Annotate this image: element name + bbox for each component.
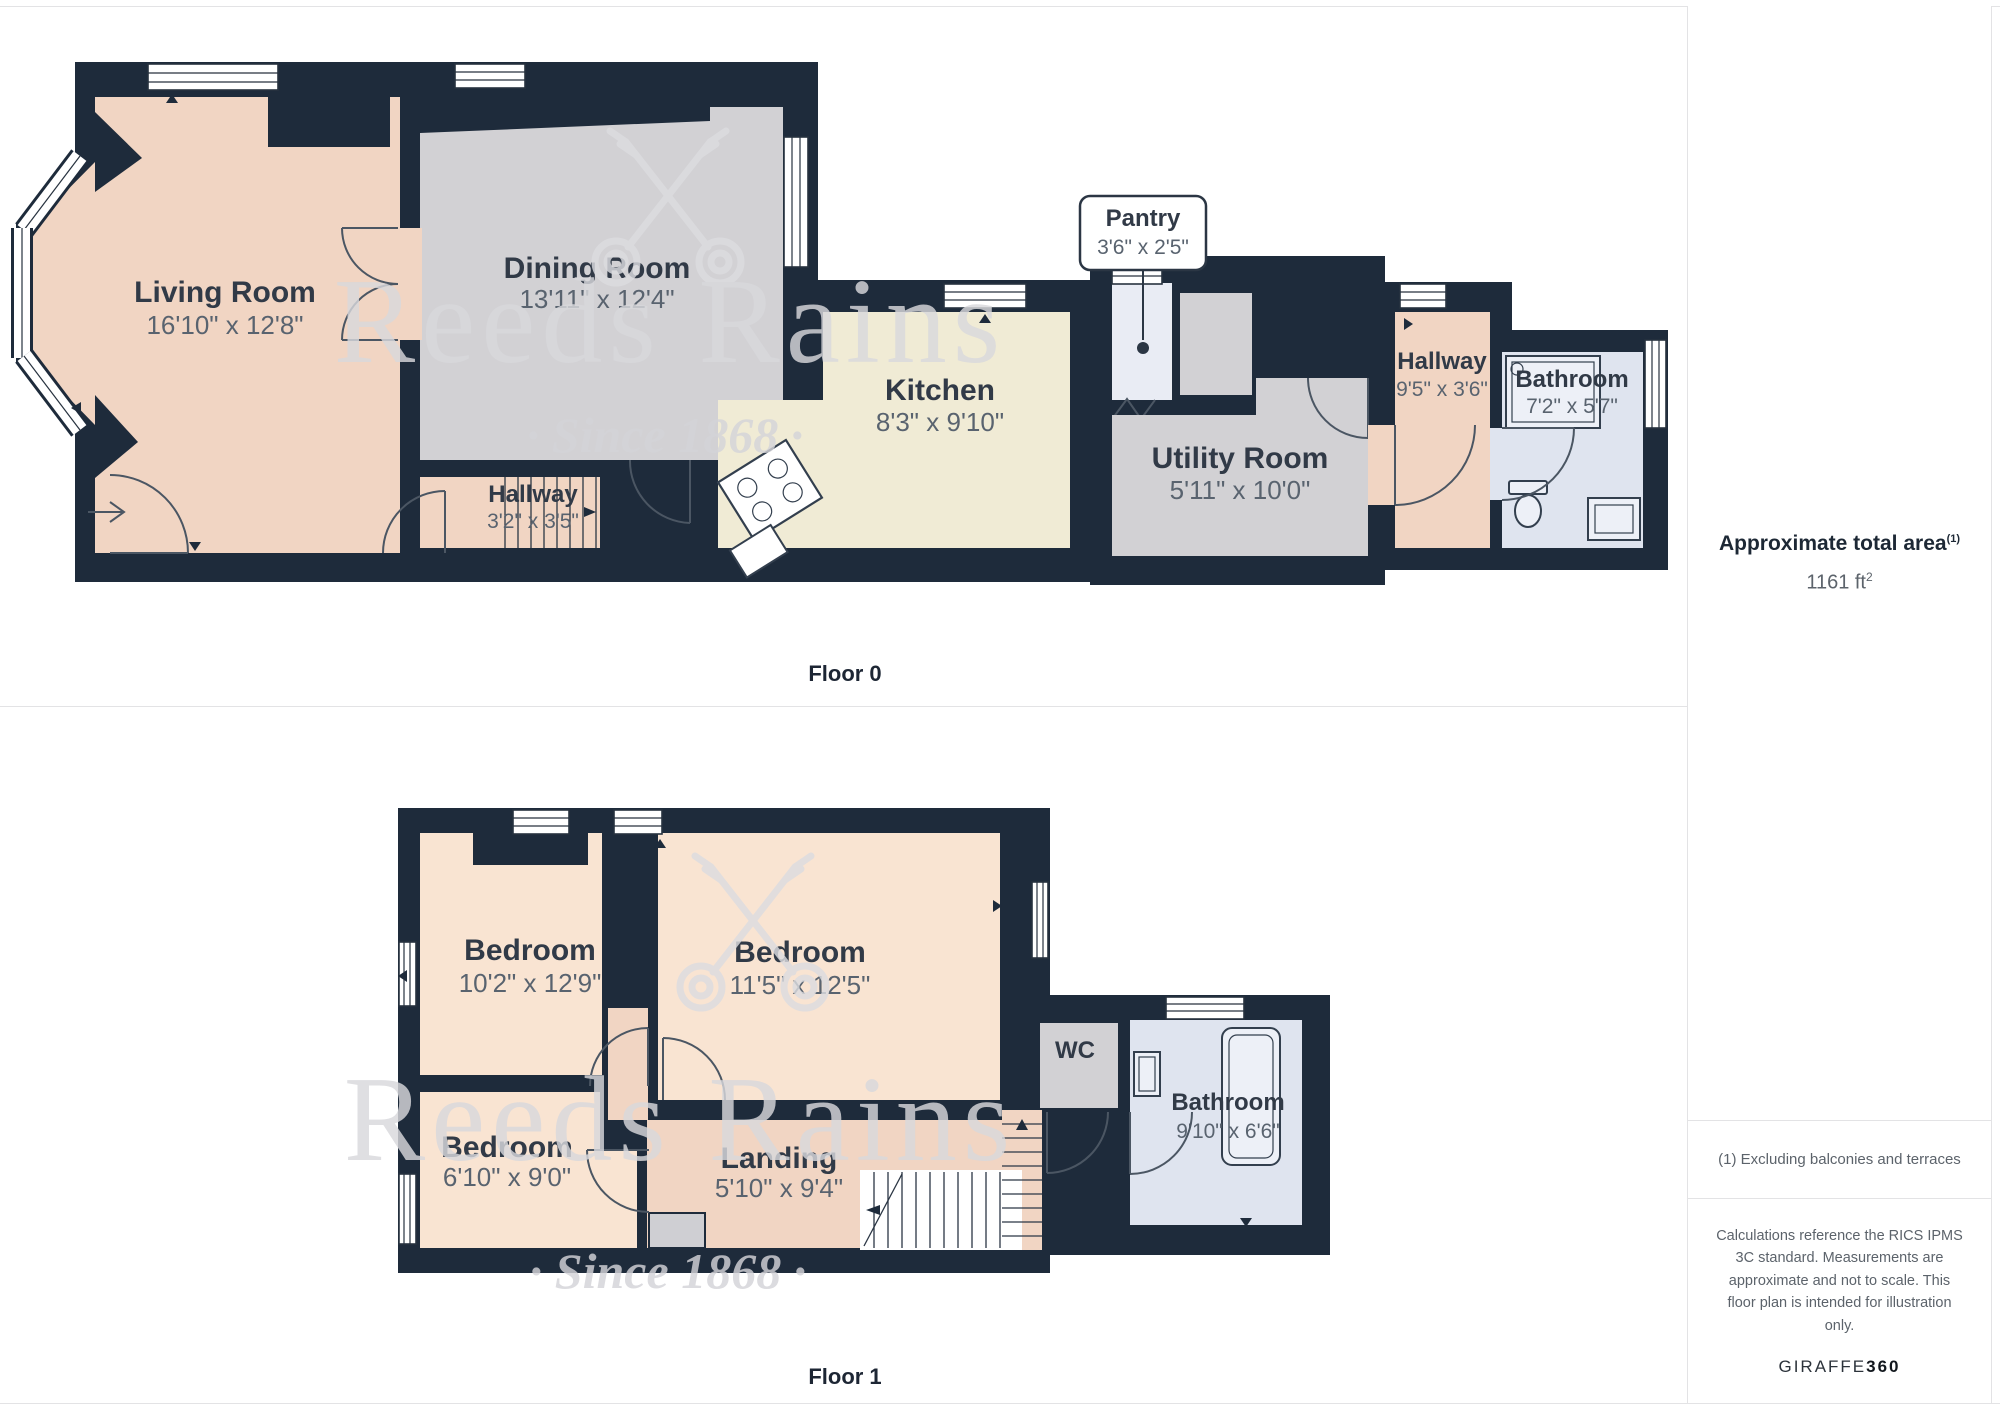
chimney-breast	[268, 97, 390, 147]
room-name: Bathroom	[1515, 366, 1628, 393]
footnote-section: (1) Excluding balconies and terraces	[1688, 1120, 1991, 1198]
sink-icon	[1588, 498, 1640, 540]
room-name: Hallway	[1397, 348, 1487, 375]
watermark-tagline: · Since 1868 ·	[530, 1243, 806, 1299]
room-name: Bedroom	[464, 934, 596, 967]
floor1-plan: Bedroom 10'2" x 12'9" Bedroom 11'5" x 12…	[344, 808, 1330, 1389]
room-hallway-floor0: Hallway 3'2" x 3'5"	[420, 477, 600, 548]
watermark-brand: Reeds Rains	[334, 254, 1007, 389]
room-dims: 9'5" x 3'6"	[1396, 378, 1488, 401]
footnote-marker: (1)	[1947, 533, 1960, 545]
room-dims: 8'3" x 9'10"	[876, 407, 1004, 437]
room-dims: 5'11" x 10'0"	[1170, 475, 1311, 505]
footnote-text: (1) Excluding balconies and terraces	[1718, 1151, 1961, 1168]
giraffe360-logo: GIRAFFE360	[1778, 1357, 1900, 1377]
floor0-plan: Living Room 16'10" x 12'8" Dining Room 1…	[16, 62, 1668, 686]
floorplan-svg: Living Room 16'10" x 12'8" Dining Room 1…	[0, 0, 1687, 1414]
disclaimer-text: Calculations reference the RICS IPMS 3C …	[1714, 1225, 1966, 1337]
watermark-brand: Reeds Rains	[344, 1052, 1017, 1187]
area-unit-exponent: 2	[1866, 570, 1873, 584]
room-dims: 16'10" x 12'8"	[146, 310, 303, 340]
area-number: 1161 ft	[1806, 571, 1866, 593]
total-area-value: 1161 ft2	[1806, 570, 1872, 595]
chimney-breast	[473, 833, 588, 865]
room-name: Living Room	[134, 276, 316, 309]
room-bedroom1: Bedroom 10'2" x 12'9"	[420, 833, 602, 1075]
total-area-section: Approximate total area(1) 1161 ft2	[1688, 6, 1991, 1120]
sink-icon	[1134, 1052, 1160, 1096]
room-bathroom-floor0: Bathroom 7'2" x 5'7"	[1502, 352, 1643, 548]
room-dims: 3'6" x 2'5"	[1097, 236, 1189, 259]
brand-name: GIRAFFE	[1778, 1357, 1866, 1376]
room-name: Hallway	[488, 481, 578, 508]
room-name: WC	[1055, 1037, 1095, 1064]
room-name: Pantry	[1106, 205, 1181, 232]
room-dims: 3'2" x 3'5"	[487, 510, 579, 533]
floorplan-page: Living Room 16'10" x 12'8" Dining Room 1…	[0, 0, 2000, 1414]
storage-alcove	[1180, 293, 1252, 395]
room-dims: 7'2" x 5'7"	[1526, 395, 1618, 418]
disclaimer-section: Calculations reference the RICS IPMS 3C …	[1688, 1198, 1991, 1403]
room-dims: 10'2" x 12'9"	[459, 968, 602, 998]
room-name: Bathroom	[1171, 1089, 1284, 1116]
room-bathroom-floor1: Bathroom 9'10" x 6'6"	[1130, 1020, 1302, 1225]
floor1-label: Floor 1	[808, 1364, 881, 1389]
room-name: Utility Room	[1152, 442, 1329, 475]
floor0-label: Floor 0	[808, 661, 881, 686]
total-area-label: Approximate total area	[1719, 532, 1947, 555]
total-area-title: Approximate total area(1)	[1719, 532, 1960, 556]
brand-suffix: 360	[1866, 1357, 1900, 1376]
room-wc: WC	[1040, 1023, 1118, 1108]
watermark-tagline: · Since 1868 ·	[527, 407, 803, 463]
info-sidebar: Approximate total area(1) 1161 ft2 (1) E…	[1687, 6, 1992, 1403]
